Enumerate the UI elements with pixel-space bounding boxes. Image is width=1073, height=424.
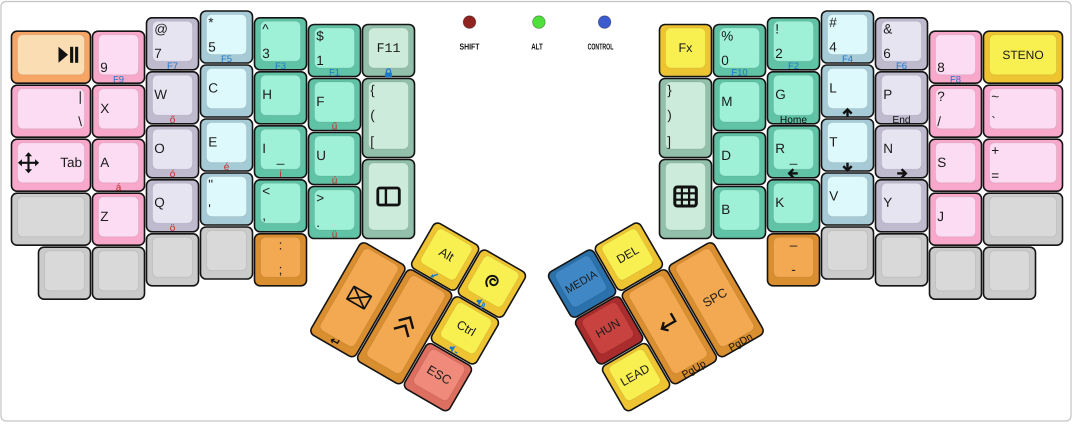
svg-text:N: N xyxy=(883,141,893,156)
svg-text:ö: ö xyxy=(170,223,176,234)
svg-text:E: E xyxy=(208,135,217,150)
svg-text:2: 2 xyxy=(775,46,783,61)
svg-text:End: End xyxy=(892,115,910,126)
svg-text:F5: F5 xyxy=(221,54,232,65)
svg-text:F3: F3 xyxy=(275,61,286,72)
svg-text:F6: F6 xyxy=(896,61,907,72)
svg-text:*: * xyxy=(208,15,214,30)
svg-text:D: D xyxy=(721,148,731,163)
svg-text:(: ( xyxy=(370,108,375,123)
svg-text:0: 0 xyxy=(721,53,729,68)
svg-text:L: L xyxy=(829,81,837,96)
svg-text:T: T xyxy=(829,135,837,150)
svg-text:[: [ xyxy=(370,134,374,149)
svg-text:?: ? xyxy=(937,89,945,104)
svg-text:<: < xyxy=(262,184,270,199)
svg-text:$: $ xyxy=(316,28,324,43)
svg-text:–: – xyxy=(790,238,798,253)
svg-text:9: 9 xyxy=(100,60,108,75)
svg-text:H: H xyxy=(262,87,272,102)
svg-text:á: á xyxy=(116,182,122,193)
svg-text:Y: Y xyxy=(883,195,892,210)
svg-text:F: F xyxy=(316,94,324,109)
svg-text:ALT: ALT xyxy=(531,42,543,52)
svg-text:SHIFT: SHIFT xyxy=(460,42,481,52)
svg-text:3: 3 xyxy=(262,46,270,61)
svg-text:F11: F11 xyxy=(377,41,401,56)
svg-text:K: K xyxy=(775,195,784,210)
svg-text:~: ~ xyxy=(991,89,999,104)
svg-text:ü: ü xyxy=(332,230,338,241)
svg-text:F9: F9 xyxy=(113,75,124,86)
svg-text:4: 4 xyxy=(829,40,837,55)
svg-text:6: 6 xyxy=(883,46,891,61)
svg-text:^: ^ xyxy=(262,22,269,37)
svg-text:STENO: STENO xyxy=(1002,48,1043,62)
svg-text:B: B xyxy=(721,202,730,217)
svg-text:Home: Home xyxy=(780,115,808,126)
svg-text:F8: F8 xyxy=(950,75,961,86)
svg-text:_: _ xyxy=(789,150,798,165)
svg-text:ú: ú xyxy=(332,176,338,187)
svg-text:,: , xyxy=(262,208,266,223)
svg-text:': ' xyxy=(208,202,211,217)
svg-text:í: í xyxy=(279,169,282,180)
svg-text:5: 5 xyxy=(208,40,216,55)
svg-text:U: U xyxy=(316,148,326,163)
svg-text:V: V xyxy=(829,189,838,204)
svg-text:C: C xyxy=(208,81,218,96)
svg-text:F2: F2 xyxy=(788,61,799,72)
svg-text:>: > xyxy=(316,190,324,205)
svg-text:}: } xyxy=(667,82,672,97)
svg-text:F7: F7 xyxy=(167,61,178,72)
svg-text:{: { xyxy=(370,82,375,97)
svg-text:ű: ű xyxy=(332,122,338,133)
svg-text::: : xyxy=(279,238,283,253)
svg-text:1: 1 xyxy=(316,53,324,68)
svg-text:M: M xyxy=(721,94,732,109)
svg-text:A: A xyxy=(100,155,109,170)
svg-text:F4: F4 xyxy=(842,54,853,65)
svg-text:): ) xyxy=(667,108,672,123)
svg-text:G: G xyxy=(775,87,786,102)
svg-text:.: . xyxy=(316,215,320,230)
svg-text:`: ` xyxy=(991,114,996,129)
svg-text:_: _ xyxy=(276,150,285,165)
svg-text:ő: ő xyxy=(170,115,176,126)
svg-text:Q: Q xyxy=(154,195,165,210)
svg-text:I: I xyxy=(262,141,266,156)
svg-text:ó: ó xyxy=(170,169,176,180)
svg-text:/: / xyxy=(937,114,941,129)
svg-text:|: | xyxy=(78,89,82,104)
svg-text:Fx: Fx xyxy=(679,41,694,55)
svg-text:O: O xyxy=(154,141,165,156)
svg-text:X: X xyxy=(100,101,109,116)
svg-text:;: ; xyxy=(279,262,283,277)
svg-text:F10: F10 xyxy=(731,68,747,79)
svg-text:P: P xyxy=(883,87,892,102)
svg-text:7: 7 xyxy=(154,46,162,61)
svg-text:]: ] xyxy=(667,134,671,149)
svg-text:#: # xyxy=(829,15,837,30)
svg-text:": " xyxy=(208,177,213,192)
svg-text:&: & xyxy=(883,22,892,37)
svg-text:R: R xyxy=(775,141,785,156)
svg-text:!: ! xyxy=(775,22,779,37)
svg-text:CONTROL: CONTROL xyxy=(588,42,614,52)
svg-text:%: % xyxy=(721,28,733,43)
svg-text:é: é xyxy=(224,162,230,173)
svg-text:@: @ xyxy=(154,22,168,37)
svg-text:Z: Z xyxy=(100,209,108,224)
svg-text:=: = xyxy=(991,168,999,183)
svg-text:F1: F1 xyxy=(329,68,340,79)
svg-text:Tab: Tab xyxy=(60,155,82,170)
svg-text:J: J xyxy=(937,209,944,224)
svg-text:-: - xyxy=(791,262,796,277)
svg-text:S: S xyxy=(937,155,946,170)
svg-text:W: W xyxy=(154,87,167,102)
svg-text:8: 8 xyxy=(937,60,945,75)
svg-text:\: \ xyxy=(78,114,82,129)
svg-text:+: + xyxy=(991,143,999,158)
